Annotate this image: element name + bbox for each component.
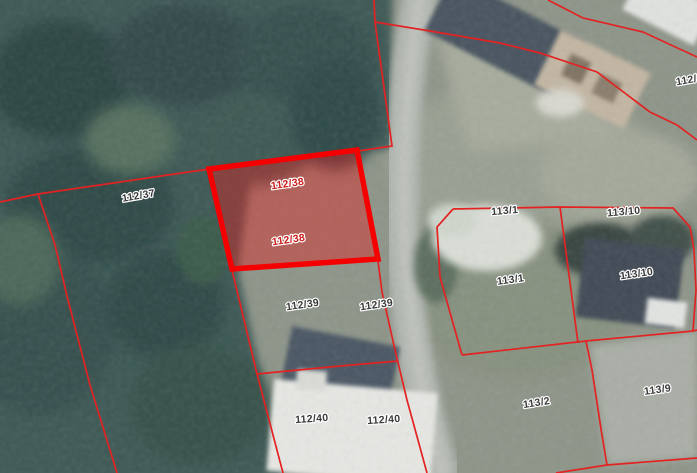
parcel-label: 113/1	[491, 204, 519, 218]
parcel-label: 112/40	[367, 413, 401, 427]
map-viewport: 112/37112/39112/39112/40112/40113/1113/1…	[0, 0, 697, 473]
parcel-label: 112/40	[295, 412, 329, 426]
selected-parcel-polygon[interactable]	[209, 150, 378, 269]
selected-parcel[interactable]	[209, 150, 378, 269]
cadastral-map[interactable]: 112/37112/39112/39112/40112/40113/1113/1…	[0, 0, 697, 473]
